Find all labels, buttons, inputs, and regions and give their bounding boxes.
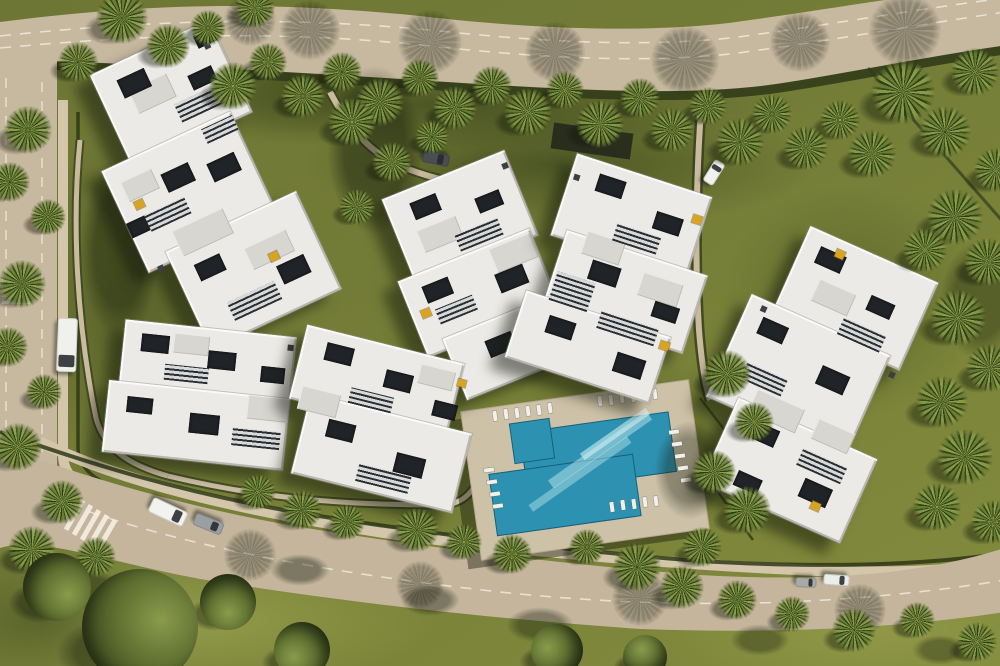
roof-panel (172, 333, 210, 357)
building-center-east-wing (520, 170, 702, 388)
vehicle-windshield (436, 154, 444, 164)
building-south-west-wing (108, 328, 300, 466)
terrace-opening (207, 350, 237, 371)
pool-water-arm-3 (509, 418, 554, 463)
vehicle-windshield (808, 578, 813, 586)
building-east (722, 242, 912, 520)
terrace-opening (126, 396, 154, 415)
building-rotor (491, 147, 731, 411)
terrace-opening (260, 366, 286, 384)
vehicle-windshield (171, 509, 184, 524)
vehicle-windshield (209, 521, 219, 533)
building-north-west (118, 38, 288, 338)
vehicle-grey-car-bottom-right (795, 577, 816, 588)
building-south-east-wing (285, 345, 473, 507)
vehicle-windshield (59, 354, 75, 366)
chimney (888, 371, 896, 379)
vehicle-white-van-left-road (56, 318, 78, 373)
aerial-render (0, 0, 1000, 666)
vehicle-windshield (711, 163, 722, 172)
vehicle-windshield (838, 576, 844, 585)
vehicle-white-car-bottom-right (823, 574, 850, 587)
terrace-opening (140, 333, 170, 354)
terrace-opening (188, 413, 220, 436)
